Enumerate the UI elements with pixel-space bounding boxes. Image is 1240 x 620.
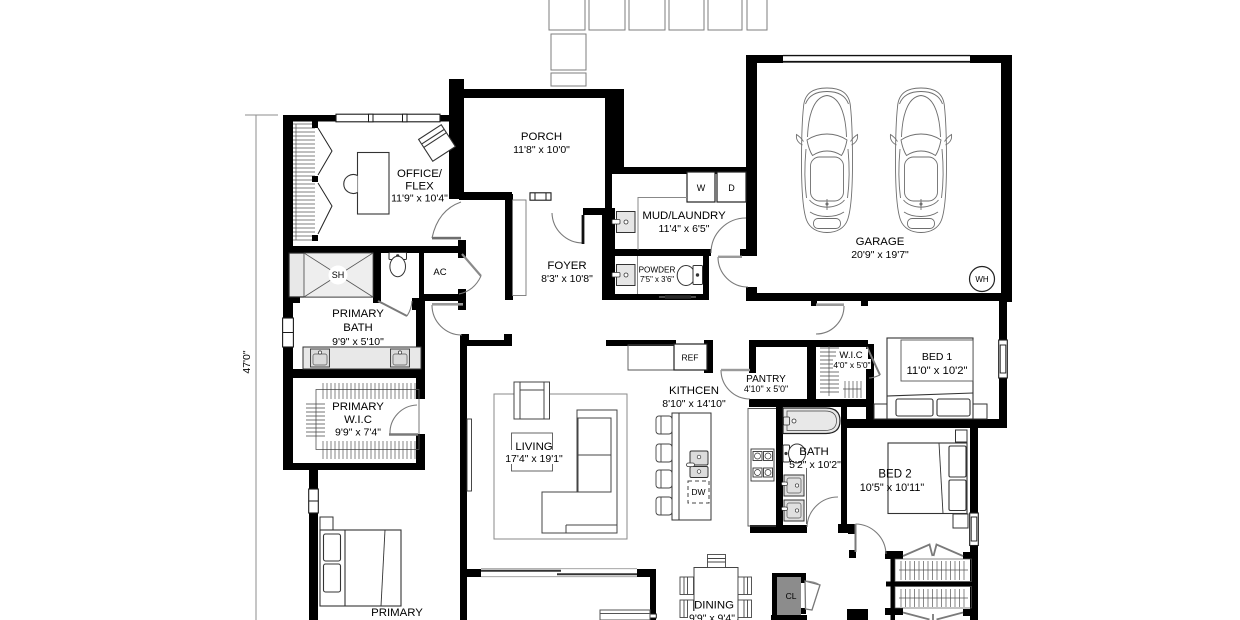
svg-text:W: W (697, 183, 706, 193)
svg-text:PORCH: PORCH (521, 131, 562, 143)
svg-text:8'10" x 14'10": 8'10" x 14'10" (662, 398, 726, 410)
svg-text:GARAGE: GARAGE (856, 236, 905, 248)
svg-text:11'0" x 10'2": 11'0" x 10'2" (906, 365, 967, 377)
svg-text:10'5" x 10'11": 10'5" x 10'11" (860, 482, 925, 494)
svg-text:47'0": 47'0" (241, 350, 253, 374)
svg-text:4'0" x 5'0": 4'0" x 5'0" (833, 360, 870, 370)
svg-text:9'9" x 5'10": 9'9" x 5'10" (332, 336, 384, 348)
svg-text:8'3" x 10'8": 8'3" x 10'8" (541, 273, 593, 285)
svg-text:REF: REF (682, 353, 699, 363)
svg-text:KITHCEN: KITHCEN (669, 385, 719, 397)
svg-text:PRIMARY: PRIMARY (371, 607, 423, 619)
svg-text:POWDER: POWDER (639, 266, 676, 275)
svg-text:BED 2: BED 2 (878, 469, 911, 481)
svg-text:BATH: BATH (799, 446, 829, 458)
svg-text:SH: SH (332, 270, 345, 280)
svg-text:W.I.C: W.I.C (344, 414, 372, 426)
svg-text:PRIMARY: PRIMARY (332, 308, 384, 320)
svg-text:5'2" x 10'2": 5'2" x 10'2" (789, 459, 841, 471)
svg-text:20'9" x 19'7": 20'9" x 19'7" (851, 249, 909, 261)
svg-text:LIVING: LIVING (515, 441, 552, 453)
svg-text:9'9" x 9'4": 9'9" x 9'4" (689, 613, 735, 620)
svg-text:7'5" x 3'6": 7'5" x 3'6" (640, 275, 674, 284)
svg-text:DW: DW (691, 487, 705, 497)
svg-text:11'4" x 6'5": 11'4" x 6'5" (659, 223, 710, 235)
svg-text:D: D (728, 183, 735, 193)
svg-text:BED 1: BED 1 (922, 351, 953, 363)
svg-text:17'4" x 19'1": 17'4" x 19'1" (505, 453, 563, 465)
svg-text:CL: CL (786, 591, 797, 601)
svg-text:9'9" x 7'4": 9'9" x 7'4" (335, 427, 381, 439)
svg-text:FLEX: FLEX (405, 181, 434, 193)
svg-text:11'8" x 10'0": 11'8" x 10'0" (513, 144, 570, 156)
svg-text:WH: WH (975, 275, 989, 284)
svg-text:PRIMARY: PRIMARY (332, 401, 384, 413)
svg-text:MUD/LAUNDRY: MUD/LAUNDRY (642, 210, 726, 222)
svg-text:BATH: BATH (343, 322, 373, 334)
svg-text:4'10" x 5'0": 4'10" x 5'0" (744, 384, 788, 394)
svg-text:AC: AC (433, 267, 446, 278)
svg-text:DINING: DINING (694, 600, 734, 612)
svg-text:11'9" x 10'4": 11'9" x 10'4" (391, 193, 448, 205)
svg-text:OFFICE/: OFFICE/ (397, 168, 443, 180)
svg-text:FOYER: FOYER (547, 260, 586, 272)
